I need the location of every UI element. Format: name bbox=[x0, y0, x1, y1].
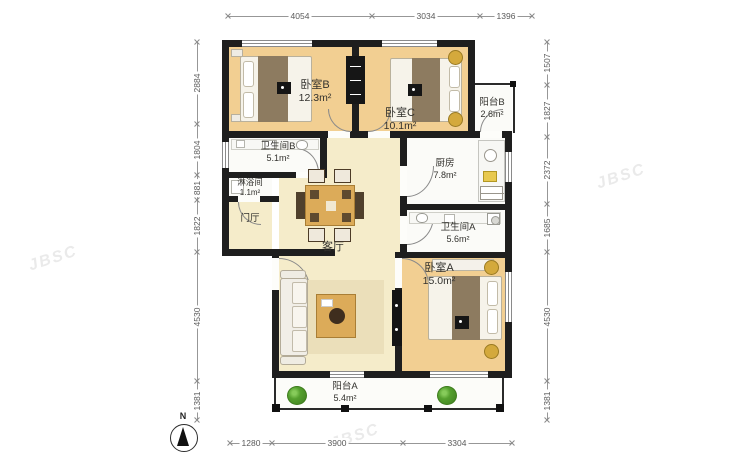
room-name: 门厅 bbox=[240, 213, 259, 224]
dimension-label: 881 bbox=[192, 179, 202, 197]
dimension-tick bbox=[194, 378, 200, 384]
dimension-label: 4054 bbox=[289, 11, 312, 21]
dimension-label: 1507 bbox=[542, 52, 552, 75]
side-table bbox=[408, 84, 422, 96]
room-name: 阳台A bbox=[332, 381, 357, 392]
plant-icon bbox=[437, 386, 457, 405]
balcony-post bbox=[496, 404, 504, 412]
watermark: JBSC bbox=[26, 243, 80, 276]
dimension-tick bbox=[400, 440, 406, 446]
room-area: 5.1m² bbox=[238, 153, 318, 165]
dining-bench bbox=[296, 192, 305, 219]
pillow bbox=[449, 66, 460, 88]
dimension-label: 2372 bbox=[542, 159, 552, 182]
dimension-line bbox=[228, 16, 532, 17]
room-label-balconyA: 阳台A 5.4m² bbox=[308, 381, 382, 405]
room-label-bedroomB: 卧室B 12.3m² bbox=[270, 78, 360, 106]
dining-chair bbox=[308, 169, 325, 183]
fridge bbox=[480, 186, 503, 200]
dimension-tick bbox=[544, 82, 550, 88]
side-table bbox=[455, 316, 469, 329]
dimension-label: 1822 bbox=[192, 215, 202, 238]
dimension-label: 1685 bbox=[542, 217, 552, 240]
sofa-cushion bbox=[292, 282, 307, 304]
dimension-tick bbox=[194, 197, 200, 203]
dining-bench bbox=[355, 192, 364, 219]
room-name: 厨房 bbox=[435, 158, 454, 169]
dining-table bbox=[305, 185, 355, 226]
dining-chair bbox=[334, 169, 351, 183]
room-area: 10.1m² bbox=[355, 120, 445, 134]
door-gap bbox=[400, 216, 407, 244]
dimension-tick bbox=[369, 13, 375, 19]
pillow bbox=[243, 92, 254, 118]
balcony-rail bbox=[274, 408, 504, 410]
dimension-tick bbox=[225, 13, 231, 19]
window bbox=[505, 152, 512, 182]
room-area: 5.4m² bbox=[308, 393, 382, 405]
room-name: 卧室C bbox=[385, 107, 415, 119]
room-name: 淋浴间 bbox=[237, 177, 263, 187]
dimension-label: 1396 bbox=[495, 11, 518, 21]
window bbox=[242, 40, 312, 47]
pillow bbox=[243, 61, 254, 87]
dimension-label: 1804 bbox=[192, 139, 202, 162]
dimension-tick bbox=[227, 440, 233, 446]
wall bbox=[468, 40, 475, 138]
table-decor bbox=[329, 308, 345, 324]
dimension-tick bbox=[194, 417, 200, 423]
sofa-cushion bbox=[292, 330, 307, 352]
room-label-bathroomA: 卫生间A 5.6m² bbox=[420, 222, 496, 246]
dimension-tick bbox=[509, 440, 515, 446]
room-label-hall: 门厅 bbox=[228, 213, 272, 225]
room-label-bedroomC: 卧室C 10.1m² bbox=[355, 106, 445, 134]
pillow bbox=[487, 309, 498, 334]
balcony-door bbox=[330, 371, 364, 378]
dimension-tick bbox=[544, 378, 550, 384]
dimension-tick bbox=[544, 39, 550, 45]
dimension-label: 1280 bbox=[240, 438, 263, 448]
door-gap bbox=[400, 166, 407, 196]
table-decor bbox=[321, 299, 333, 307]
pillow bbox=[449, 90, 460, 112]
dimension-tick bbox=[194, 121, 200, 127]
stool bbox=[484, 260, 499, 275]
dimension-tick bbox=[529, 13, 535, 19]
dimension-label: 4530 bbox=[192, 306, 202, 329]
room-label-living: 客厅 bbox=[308, 240, 358, 254]
dimension-tick bbox=[194, 249, 200, 255]
dimension-label: 1827 bbox=[542, 100, 552, 123]
window bbox=[430, 371, 488, 378]
dimension-label: 2884 bbox=[192, 72, 202, 95]
sofa bbox=[280, 356, 306, 365]
entry-door-gap bbox=[272, 258, 279, 290]
room-name: 卧室A bbox=[424, 262, 453, 274]
dimension-label: 1381 bbox=[542, 390, 552, 413]
north-label: N bbox=[176, 411, 190, 421]
room-name: 客厅 bbox=[322, 241, 344, 253]
sofa-cushion bbox=[292, 306, 307, 328]
room-label-balconyB: 阳台B 2.6m² bbox=[462, 97, 522, 121]
window bbox=[222, 142, 229, 168]
room-label-bedroomA: 卧室A 15.0m² bbox=[402, 261, 476, 289]
dimension-tick bbox=[269, 440, 275, 446]
room-label-bathroomB: 卫生间B 5.1m² bbox=[238, 141, 318, 165]
dimension-tick bbox=[544, 201, 550, 207]
door-gap bbox=[395, 258, 402, 288]
plant-icon bbox=[287, 386, 307, 405]
dimension-label: 1381 bbox=[192, 390, 202, 413]
window bbox=[505, 272, 512, 322]
balcony-post bbox=[272, 404, 280, 412]
room-label-shower: 淋浴间 1.1m² bbox=[224, 177, 276, 198]
room-name: 卫生间B bbox=[261, 141, 296, 152]
dimension-label: 3034 bbox=[415, 11, 438, 21]
window bbox=[382, 40, 437, 47]
balcony-rail bbox=[475, 83, 515, 85]
tv-cabinet bbox=[392, 290, 402, 346]
room-area: 15.0m² bbox=[402, 275, 476, 289]
room-label-kitchen: 厨房 7.8m² bbox=[412, 158, 478, 182]
dimension-label: 4530 bbox=[542, 306, 552, 329]
dimension-label: 3304 bbox=[446, 438, 469, 448]
dimension-tick bbox=[544, 417, 550, 423]
stove bbox=[483, 171, 497, 182]
dimension-tick bbox=[194, 172, 200, 178]
room-area: 7.8m² bbox=[412, 170, 478, 182]
wall bbox=[400, 252, 512, 258]
dimension-tick bbox=[477, 13, 483, 19]
dimension-tick bbox=[544, 249, 550, 255]
room-area: 12.3m² bbox=[270, 92, 360, 106]
wall bbox=[400, 204, 512, 210]
room-area: 5.6m² bbox=[420, 234, 496, 246]
watermark: JBSC bbox=[328, 421, 382, 454]
wall bbox=[222, 249, 279, 256]
room-name: 卫生间A bbox=[441, 222, 476, 233]
dimension-tick bbox=[544, 134, 550, 140]
stool bbox=[448, 112, 463, 127]
watermark: JBSC bbox=[594, 161, 648, 194]
stool bbox=[448, 50, 463, 65]
room-area: 2.6m² bbox=[462, 109, 522, 121]
dimension-label: 3900 bbox=[326, 438, 349, 448]
stool bbox=[484, 344, 499, 359]
north-arrow-icon bbox=[177, 427, 189, 446]
room-name: 阳台B bbox=[479, 97, 504, 108]
floor-plan-canvas: JBSC JBSC JBSC JBSC JBSC bbox=[0, 0, 746, 460]
room-name: 卧室B bbox=[300, 79, 329, 91]
room-area: 1.1m² bbox=[224, 188, 276, 198]
balcony-post bbox=[510, 81, 516, 87]
door-gap bbox=[328, 131, 350, 138]
dimension-tick bbox=[194, 39, 200, 45]
balcony-post bbox=[341, 405, 349, 412]
pillow bbox=[487, 281, 498, 306]
sink bbox=[484, 149, 497, 162]
door-gap bbox=[480, 131, 502, 138]
balcony-post bbox=[424, 405, 432, 412]
